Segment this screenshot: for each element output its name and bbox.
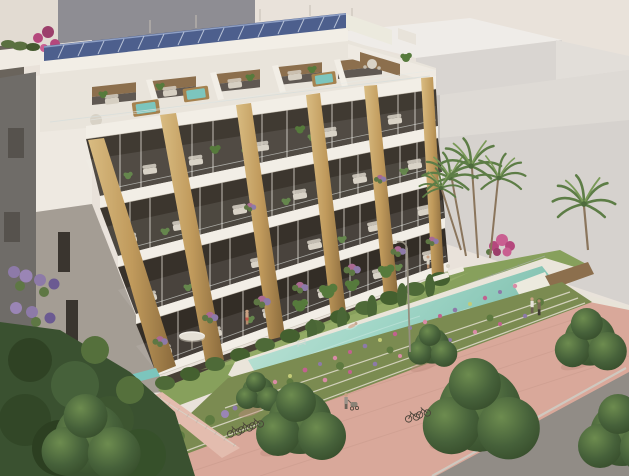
render-image: Aerial architectural rendering of a resi… [0,0,629,476]
round-table [367,59,377,69]
person-lawn [245,310,248,325]
side-window [58,232,70,272]
neighbor-window [4,212,20,242]
neighbor-window [8,128,24,158]
architectural-render: Aerial architectural rendering of a resi… [0,0,629,476]
